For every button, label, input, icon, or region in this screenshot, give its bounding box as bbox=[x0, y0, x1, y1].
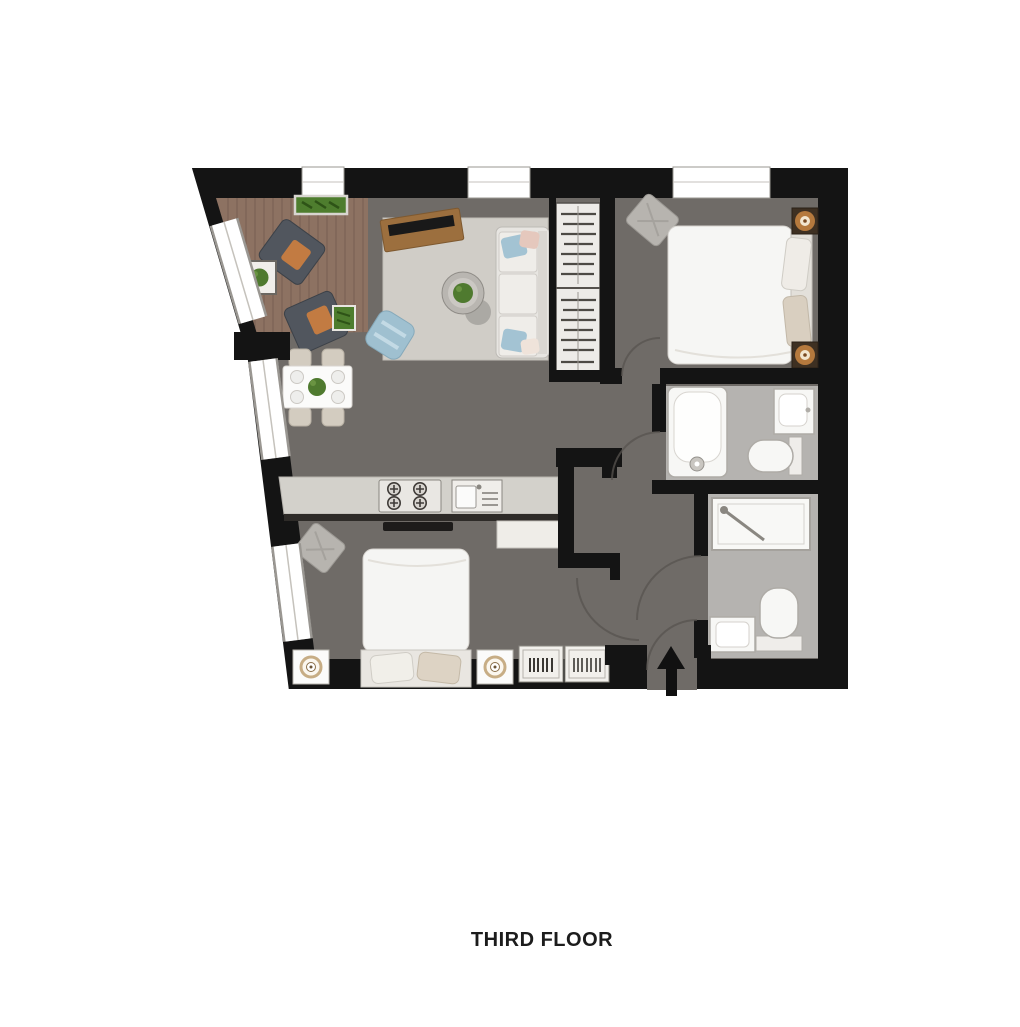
bedside-table bbox=[792, 208, 818, 234]
sofa-backrest bbox=[538, 231, 547, 354]
dresser bbox=[565, 646, 609, 682]
planter-box bbox=[295, 196, 347, 214]
bedside-table bbox=[792, 342, 818, 368]
wall bbox=[697, 645, 711, 665]
wall bbox=[605, 645, 647, 665]
toilet bbox=[748, 437, 802, 475]
pillow bbox=[416, 652, 461, 685]
wall bbox=[234, 332, 290, 360]
pillow bbox=[782, 295, 811, 347]
bathtub bbox=[668, 387, 727, 477]
wall bbox=[610, 568, 620, 580]
dining-chair bbox=[289, 349, 311, 368]
wall bbox=[556, 448, 622, 467]
pillow bbox=[370, 652, 415, 684]
wall bbox=[558, 553, 620, 568]
living-area bbox=[362, 208, 549, 363]
wall bbox=[602, 467, 617, 478]
throw-pillow bbox=[519, 230, 540, 250]
counter-edge bbox=[284, 514, 558, 521]
double-bed bbox=[361, 549, 471, 687]
tv bbox=[383, 522, 453, 531]
plant bbox=[453, 283, 473, 303]
desk bbox=[497, 521, 559, 548]
window bbox=[263, 360, 276, 458]
wardrobe bbox=[556, 203, 600, 374]
window bbox=[302, 167, 344, 198]
wall bbox=[660, 368, 833, 384]
bedside-table bbox=[477, 650, 513, 684]
shower bbox=[712, 498, 810, 550]
wall bbox=[558, 467, 574, 555]
wall bbox=[652, 480, 833, 494]
kitchen bbox=[279, 477, 558, 521]
bedside-table bbox=[293, 650, 329, 684]
wall bbox=[652, 384, 666, 432]
washbasin bbox=[710, 617, 755, 652]
throw-pillow bbox=[520, 338, 540, 355]
window bbox=[673, 167, 770, 198]
planter-box bbox=[333, 306, 355, 330]
floor-title: THIRD FLOOR bbox=[471, 929, 613, 952]
window bbox=[286, 545, 298, 640]
floorplan-page: THIRD FLOOR bbox=[0, 0, 1020, 1027]
dining-chair bbox=[322, 407, 344, 426]
hob bbox=[379, 480, 441, 512]
dresser bbox=[519, 646, 563, 682]
bathroom bbox=[666, 386, 818, 480]
wall bbox=[549, 197, 556, 375]
washbasin bbox=[774, 389, 814, 434]
plant bbox=[308, 378, 326, 396]
wall bbox=[549, 370, 602, 382]
wall bbox=[600, 197, 615, 380]
sofa bbox=[496, 227, 549, 358]
floor-plan bbox=[0, 0, 1020, 1027]
dining-chair bbox=[322, 349, 344, 368]
wall bbox=[600, 368, 622, 384]
toilet bbox=[756, 588, 802, 651]
double-bed bbox=[668, 226, 812, 364]
dining-chair bbox=[289, 407, 311, 426]
wall bbox=[694, 494, 708, 556]
kitchen-sink bbox=[452, 480, 502, 512]
window bbox=[468, 167, 530, 198]
tap bbox=[477, 485, 482, 490]
shower-room bbox=[708, 494, 818, 658]
